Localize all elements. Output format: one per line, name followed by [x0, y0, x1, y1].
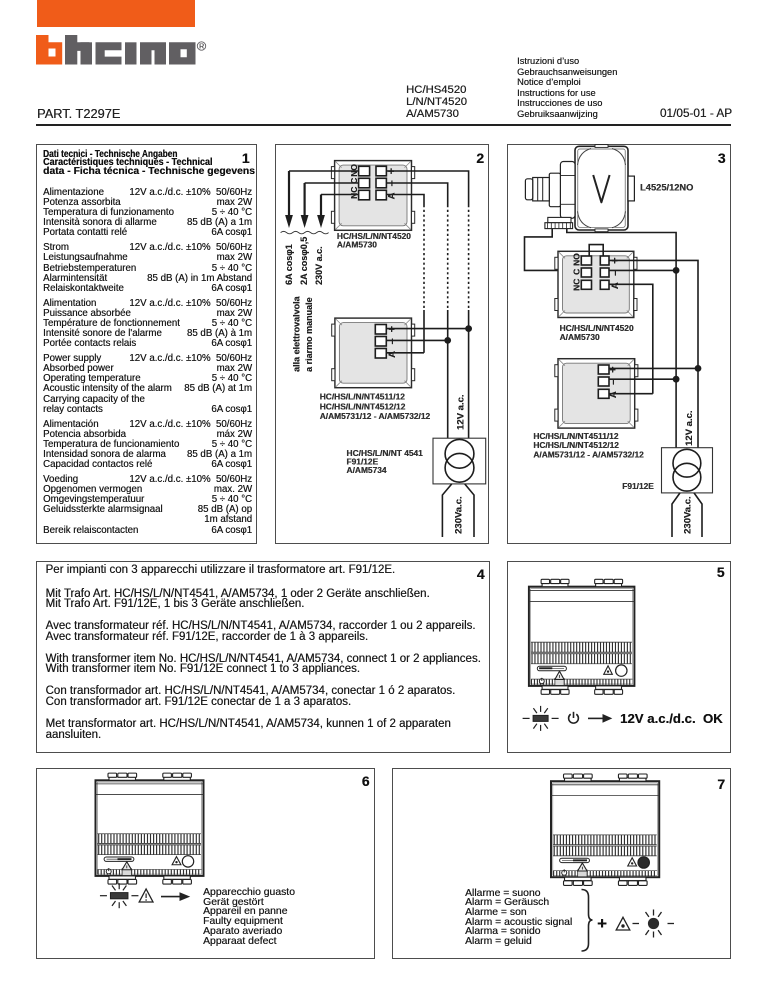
svg-text:C: C [572, 269, 582, 275]
svg-text:230Va.c.: 230Va.c. [453, 496, 464, 534]
svg-text:NO: NO [349, 164, 359, 177]
svg-text:HC/HS/L/N/NT4511/12HC/HS/L/N/N: HC/HS/L/N/NT4511/12HC/HS/L/N/NT4512/12A/… [533, 431, 644, 460]
svg-text:HC/HS/L/N/NT 4541F91/12EA/AM57: HC/HS/L/N/NT 4541F91/12EA/AM5734 [346, 448, 423, 475]
svg-text:R: R [199, 44, 204, 51]
svg-text:A: A [387, 193, 398, 200]
svg-text:alla elettrovalvola: alla elettrovalvola [291, 295, 301, 372]
svg-text:–: – [387, 338, 399, 344]
svg-text:L4525/12NO: L4525/12NO [640, 183, 693, 193]
svg-text:230V a.c.: 230V a.c. [314, 246, 324, 285]
svg-text:A: A [608, 391, 619, 398]
svg-text:NO: NO [572, 253, 582, 266]
svg-text:6A cosφ1: 6A cosφ1 [284, 244, 294, 285]
svg-text:HC/HS/L/N/NT4511/12HC/HS/L/N/N: HC/HS/L/N/NT4511/12HC/HS/L/N/NT4512/12A/… [320, 392, 431, 421]
svg-text:+: + [597, 914, 607, 933]
svg-text:C: C [349, 178, 359, 184]
svg-text:230Va.c.: 230Va.c. [682, 496, 693, 534]
svg-text:12V a.c.: 12V a.c. [456, 395, 467, 430]
svg-text:F91/12E: F91/12E [622, 481, 654, 491]
svg-text:HC/HS/L/N/NT4520A/AM5730: HC/HS/L/N/NT4520A/AM5730 [337, 231, 411, 250]
svg-text:+: + [608, 367, 620, 373]
svg-text:a riarmo manuale: a riarmo manuale [304, 297, 314, 372]
svg-text:NC: NC [349, 187, 359, 199]
svg-text:A: A [610, 282, 621, 289]
svg-text:2A cosφ0,5: 2A cosφ0,5 [299, 237, 309, 285]
svg-text:12V a.c.: 12V a.c. [684, 411, 695, 446]
svg-text:HC/HS/L/N/NT4520A/AM5730: HC/HS/L/N/NT4520A/AM5730 [560, 323, 634, 342]
svg-text:NC: NC [572, 279, 582, 291]
